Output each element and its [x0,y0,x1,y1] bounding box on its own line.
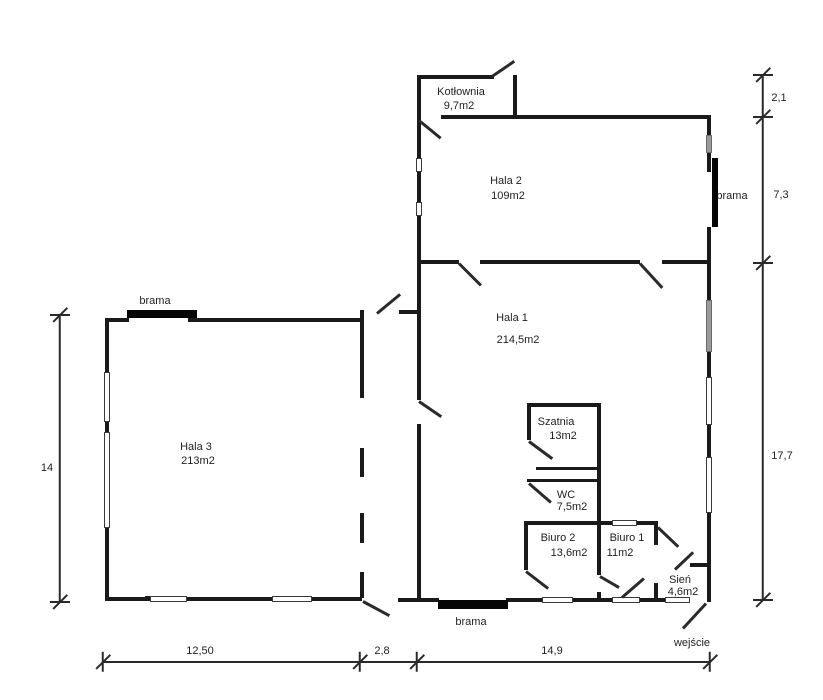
annotation-brama-bottom: brama [455,616,486,628]
wall-segment [398,598,418,602]
wall-segment [527,479,597,482]
wall-segment [524,521,598,525]
wall-segment [360,572,364,598]
wall-segment [506,598,542,602]
wall-segment [654,583,658,600]
gate-bar-hala2 [712,158,718,227]
door-swing [418,400,442,417]
annotation-brama-hala2: brama [716,190,747,202]
room-area-hala1: 214,5m2 [497,334,540,346]
window-segment [612,597,640,603]
annotation-wejscie: wejście [674,637,710,649]
window-segment [706,135,712,153]
wall-segment [417,260,459,264]
room-area-hala3: 213m2 [181,455,215,467]
door-swing [674,551,694,570]
wall-segment [601,521,612,525]
wall-segment [640,598,665,602]
room-area-wc: 7,5m2 [557,501,588,513]
room-area-hala2: 109m2 [491,190,525,202]
door-swing [362,600,389,617]
annotation-brama-hala3: brama [139,295,170,307]
wall-segment [105,322,109,372]
window-segment [665,597,690,603]
wall-segment [527,407,531,440]
door-swing [639,262,663,288]
wall-segment [417,424,421,600]
wall-segment [360,310,364,398]
room-label-kotlownia: Kotłownia [437,86,485,98]
wall-segment [707,264,711,300]
floor-plan: Kotłownia 9,7m2 Hala 2 109m2 Hala 1 214,… [0,0,823,700]
wall-segment [707,513,711,602]
window-segment [150,596,187,602]
wall-segment [187,597,272,601]
window-segment [416,158,422,172]
door-swing [418,119,442,139]
gate-bar-hala3 [127,310,197,318]
window-segment [104,432,110,528]
wall-segment [360,513,364,543]
door-swing [528,440,553,459]
wall-segment [441,115,711,119]
wall-segment [399,310,418,314]
wall-segment [573,598,612,602]
window-segment [272,596,312,602]
window-segment [706,300,712,352]
wall-segment [513,75,517,119]
room-area-biuro2: 13,6m2 [551,547,588,559]
wall-segment [417,75,421,121]
room-label-hala2: Hala 2 [490,175,522,187]
room-label-biuro2: Biuro 2 [541,532,576,544]
window-segment [542,597,573,603]
dimension-line [59,315,61,602]
wall-segment [105,528,109,598]
room-label-szatnia: Szatnia [538,416,575,428]
door-swing [458,262,482,286]
room-label-hala3: Hala 3 [180,441,212,453]
wall-segment [654,521,658,545]
wall-segment [360,448,364,477]
door-swing [682,602,707,629]
door-swing [528,482,552,503]
wall-segment [105,422,109,432]
dimension-label-14-9: 14,9 [541,645,562,657]
room-area-szatnia: 13m2 [549,430,577,442]
wall-segment [480,260,640,264]
dimension-line [762,75,764,600]
wall-segment [417,172,421,202]
wall-segment [707,227,711,264]
dimension-label-14: 14 [41,462,53,474]
wall-segment [524,525,528,570]
wall-segment [690,563,707,567]
dimension-label-17-7: 17,7 [771,450,792,462]
room-label-sien: Sień [669,574,691,586]
room-label-hala1: Hala 1 [496,312,528,324]
gate-bar-bottom [438,600,508,609]
window-segment [706,457,712,513]
wall-segment [707,119,711,135]
dimension-label-2-1: 2,1 [771,92,786,104]
window-segment [706,377,712,425]
door-swing [621,577,645,598]
room-label-biuro1: Biuro 1 [610,532,645,544]
room-area-biuro1: 11m2 [607,547,634,559]
dimension-label-2-8: 2,8 [374,645,389,657]
door-swing [657,526,679,547]
door-swing [491,60,515,77]
wall-segment [417,75,494,79]
wall-segment [597,403,601,575]
wall-segment [417,121,421,158]
dimension-line [103,661,710,663]
dimension-label-12-50: 12,50 [186,645,214,657]
wall-segment [188,318,362,322]
wall-segment [662,260,711,264]
wall-segment [312,597,362,601]
wall-segment [707,425,711,457]
window-segment [416,202,422,216]
wall-segment [417,216,421,262]
dimension-label-7-3: 7,3 [773,189,788,201]
wall-segment [707,153,711,172]
wall-segment [527,403,600,407]
door-swing [525,570,549,589]
door-swing [376,293,401,314]
wall-segment [707,352,711,377]
wall-segment [536,467,597,470]
room-area-kotlownia: 9,7m2 [444,100,475,112]
wall-segment [417,598,439,602]
wall-segment [417,264,421,400]
room-label-wc: WC [557,489,575,501]
wall-segment [105,597,145,601]
door-swing [599,575,620,589]
window-segment [612,520,637,526]
window-segment [104,372,110,422]
wall-segment [597,592,601,602]
